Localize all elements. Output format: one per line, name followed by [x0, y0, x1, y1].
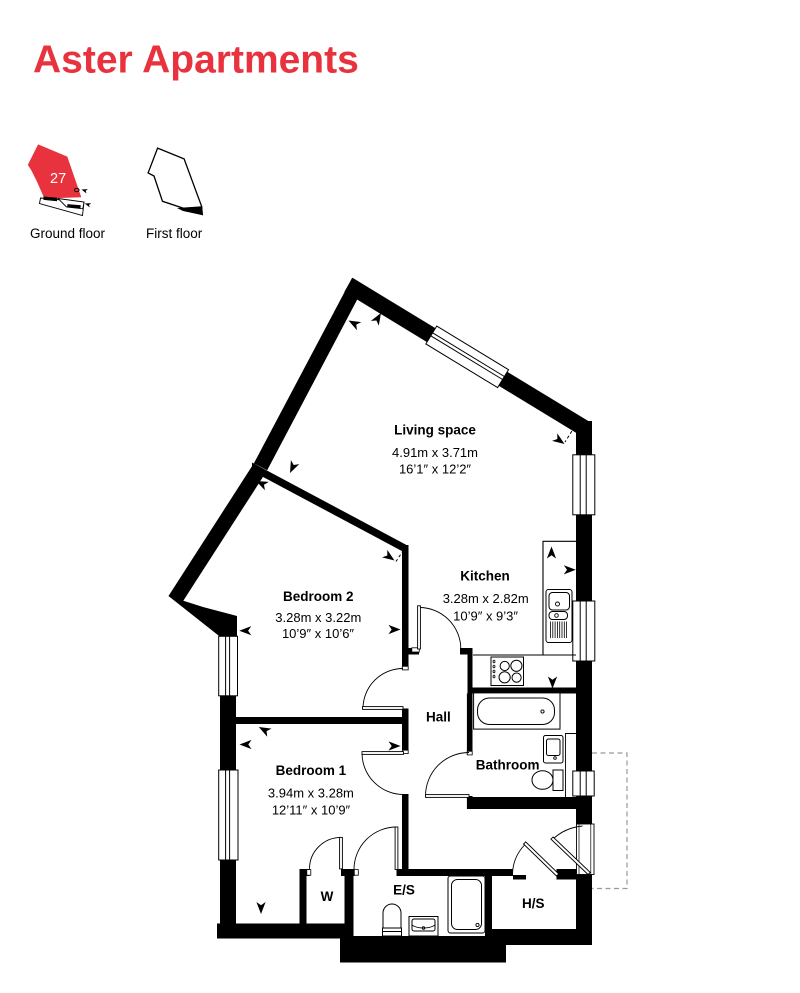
svg-text:H/S: H/S — [522, 896, 545, 911]
svg-text:First floor: First floor — [146, 226, 203, 241]
svg-text:3.28m x 3.22m: 3.28m x 3.22m — [275, 610, 361, 625]
svg-text:10’9″ x 10’6″: 10’9″ x 10’6″ — [282, 626, 354, 641]
svg-text:27: 27 — [50, 171, 66, 187]
svg-text:16’1″ x 12’2″: 16’1″ x 12’2″ — [399, 461, 471, 476]
svg-text:3.28m x 2.82m: 3.28m x 2.82m — [443, 591, 529, 606]
svg-text:10’9″ x 9’3″: 10’9″ x 9’3″ — [453, 609, 518, 624]
svg-text:3.94m x 3.28m: 3.94m x 3.28m — [268, 785, 354, 800]
svg-text:4.91m x 3.71m: 4.91m x 3.71m — [392, 445, 478, 460]
svg-text:12’11″ x 10’9″: 12’11″ x 10’9″ — [272, 803, 351, 818]
svg-text:Ground floor: Ground floor — [30, 226, 106, 241]
svg-text:Bedroom 1: Bedroom 1 — [276, 763, 347, 778]
svg-text:Bathroom: Bathroom — [476, 758, 540, 773]
svg-text:E/S: E/S — [393, 883, 415, 898]
svg-text:W: W — [321, 889, 334, 904]
svg-text:Hall: Hall — [426, 710, 451, 725]
svg-text:Aster Apartments: Aster Apartments — [33, 39, 359, 82]
svg-text:Kitchen: Kitchen — [460, 569, 510, 584]
svg-text:Living space: Living space — [394, 423, 476, 438]
svg-text:Bedroom 2: Bedroom 2 — [283, 589, 354, 604]
